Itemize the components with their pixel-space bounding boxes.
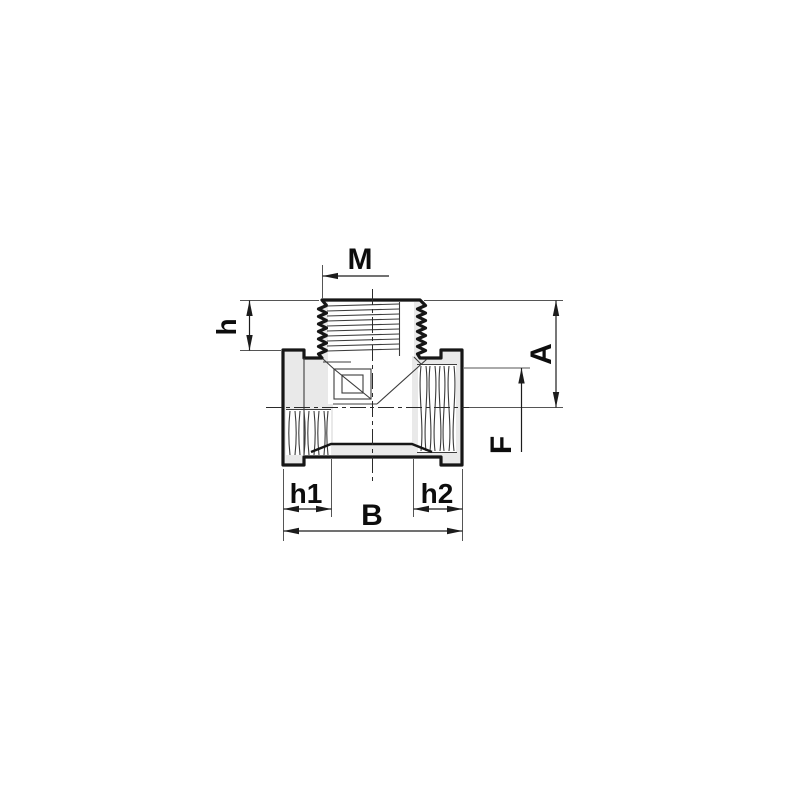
- dimension-h1: h1: [284, 459, 332, 541]
- dimension-F: F: [464, 368, 530, 454]
- dimension-h: h: [211, 301, 319, 351]
- dim-label-h1: h1: [290, 478, 323, 509]
- drawing-canvas: M h A F h1 h2: [0, 0, 800, 800]
- dimension-h2: h2: [414, 459, 463, 541]
- dim-label-a: A: [525, 343, 558, 365]
- dim-label-b: B: [361, 499, 383, 532]
- dim-label-f: F: [485, 436, 518, 454]
- dimension-M: M: [323, 243, 390, 299]
- dim-label-m: M: [348, 243, 373, 276]
- tee-fitting-technical-drawing: M h A F h1 h2: [0, 0, 800, 800]
- dim-label-h2: h2: [421, 478, 454, 509]
- dim-label-h: h: [211, 318, 242, 335]
